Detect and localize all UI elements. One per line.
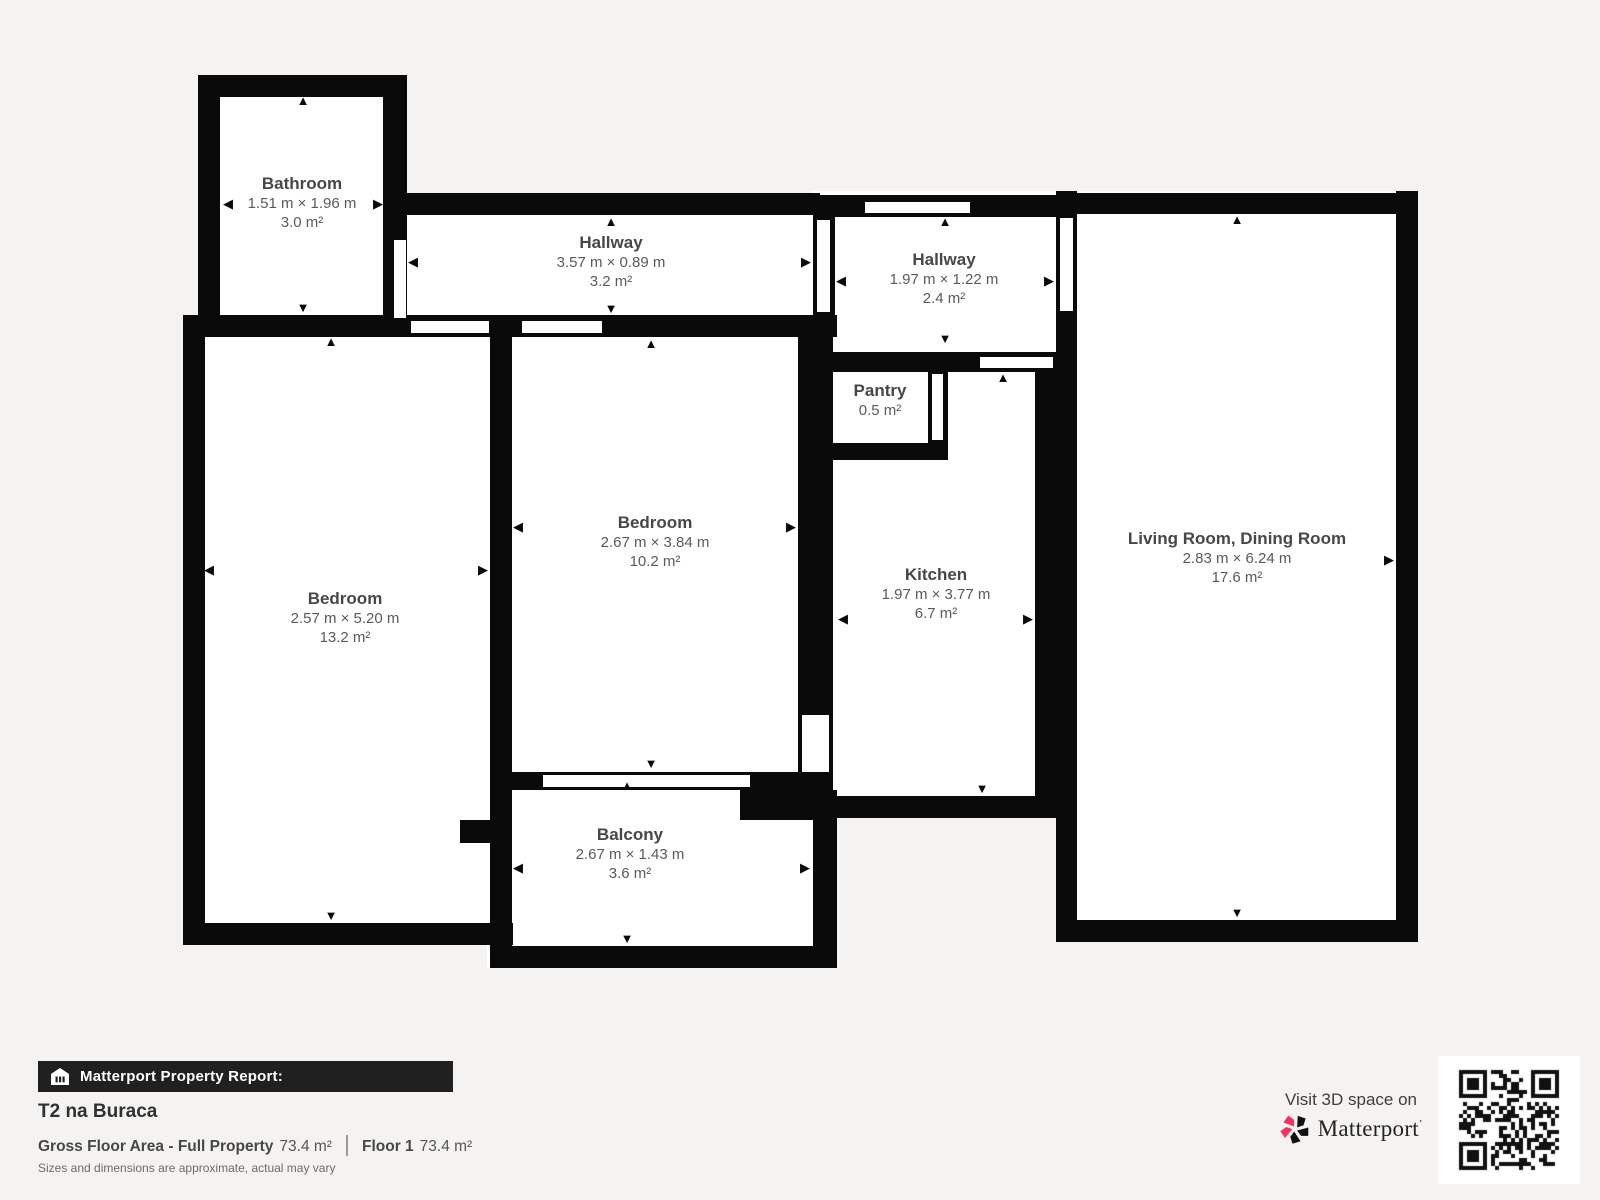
dimension-arrow-left: ◀ xyxy=(220,196,236,212)
room-dimensions: 2.57 m × 5.20 m xyxy=(291,609,400,628)
room-name: Balcony xyxy=(576,824,685,845)
room-name: Kitchen xyxy=(882,564,991,585)
room-area: 3.2 m² xyxy=(557,272,666,291)
room-name: Hallway xyxy=(557,232,666,253)
gfa-label: Gross Floor Area - Full Property xyxy=(38,1138,273,1155)
disclaimer-text: Sizes and dimensions are approximate, ac… xyxy=(38,1161,335,1175)
door-opening xyxy=(865,202,970,213)
dimension-arrow-right: ▶ xyxy=(797,860,813,876)
dimension-arrow-up: ▲ xyxy=(995,370,1011,386)
qr-canvas xyxy=(1458,1069,1560,1171)
wall xyxy=(1056,193,1418,214)
report-bar: Matterport Property Report: xyxy=(38,1061,453,1092)
room-area: 3.0 m² xyxy=(248,213,357,232)
room-name: Bathroom xyxy=(248,173,357,194)
wall xyxy=(818,443,948,460)
room-label-pantry: Pantry0.5 m² xyxy=(854,380,907,420)
dimension-arrow-down: ▼ xyxy=(619,931,635,947)
qr-code[interactable] xyxy=(1438,1056,1580,1184)
area-summary: Gross Floor Area - Full Property73.4 m²F… xyxy=(38,1135,472,1156)
room-dimensions: 2.83 m × 6.24 m xyxy=(1128,549,1346,568)
wall xyxy=(183,923,513,945)
door-opening xyxy=(1060,218,1073,311)
room-label-bedroom-left: Bedroom2.57 m × 5.20 m13.2 m² xyxy=(291,588,400,647)
dimension-arrow-left: ◀ xyxy=(405,254,421,270)
dimension-arrow-left: ◀ xyxy=(510,519,526,535)
dimension-arrow-right: ▶ xyxy=(783,519,799,535)
matterport-pinwheel-icon xyxy=(1280,1114,1310,1144)
door-opening xyxy=(543,775,750,787)
room-name: Bedroom xyxy=(601,512,710,533)
door-opening xyxy=(522,321,602,333)
dimension-arrow-left: ◀ xyxy=(835,611,851,627)
room-label-hallway-entry: Hallway1.97 m × 1.22 m2.4 m² xyxy=(890,249,999,308)
matterport-logo[interactable]: Matterport’ xyxy=(1248,1113,1454,1145)
room-dimensions: 2.67 m × 1.43 m xyxy=(576,845,685,864)
dimension-arrow-down: ▼ xyxy=(643,756,659,772)
door-opening xyxy=(802,715,829,772)
dimension-arrow-up: ▲ xyxy=(619,778,635,794)
room-dimensions: 2.67 m × 3.84 m xyxy=(601,533,710,552)
dimension-arrow-right: ▶ xyxy=(475,562,491,578)
door-opening xyxy=(932,374,943,440)
room-dimensions: 1.97 m × 1.22 m xyxy=(890,270,999,289)
wall xyxy=(1396,191,1418,942)
wall xyxy=(198,75,220,320)
dimension-arrow-right: ▶ xyxy=(798,254,814,270)
trademark-mark: ’ xyxy=(1419,1119,1422,1130)
wall xyxy=(490,315,512,968)
room-area: 6.7 m² xyxy=(882,604,991,623)
dimension-arrow-right: ▶ xyxy=(370,196,386,212)
dimension-arrow-left: ◀ xyxy=(201,562,217,578)
room-area: 0.5 m² xyxy=(854,401,907,420)
dimension-arrow-down: ▼ xyxy=(1229,905,1245,921)
room-name: Hallway xyxy=(890,249,999,270)
room-area: 10.2 m² xyxy=(601,552,710,571)
room-label-living-dining: Living Room, Dining Room2.83 m × 6.24 m1… xyxy=(1128,528,1346,587)
door-opening xyxy=(817,220,830,312)
wall xyxy=(460,820,512,843)
dimension-arrow-up: ▲ xyxy=(603,214,619,230)
door-opening xyxy=(411,321,489,333)
wall xyxy=(1035,372,1056,818)
room-label-bedroom-middle: Bedroom2.67 m × 3.84 m10.2 m² xyxy=(601,512,710,571)
dimension-arrow-right: ▶ xyxy=(1041,273,1057,289)
dimension-arrow-up: ▲ xyxy=(937,214,953,230)
dimension-arrow-up: ▲ xyxy=(323,334,339,350)
wall xyxy=(490,946,837,968)
room-dimensions: 3.57 m × 0.89 m xyxy=(557,253,666,272)
room-area: 17.6 m² xyxy=(1128,568,1346,587)
dimension-arrow-up: ▲ xyxy=(295,93,311,109)
dimension-arrow-left: ◀ xyxy=(1056,552,1072,568)
wall xyxy=(385,193,820,215)
wall xyxy=(740,790,837,820)
dimension-arrow-down: ▼ xyxy=(295,300,311,316)
dimension-arrow-down: ▼ xyxy=(323,908,339,924)
dimension-arrow-up: ▲ xyxy=(1229,212,1245,228)
room-dimensions: 1.51 m × 1.96 m xyxy=(248,194,357,213)
home-icon xyxy=(51,1068,69,1085)
dimension-arrow-right: ▶ xyxy=(1020,611,1036,627)
room-label-hallway-top: Hallway3.57 m × 0.89 m3.2 m² xyxy=(557,232,666,291)
room-label-kitchen: Kitchen1.97 m × 3.77 m6.7 m² xyxy=(882,564,991,623)
wall xyxy=(183,315,205,945)
dimension-arrow-down: ▼ xyxy=(937,331,953,347)
wall xyxy=(1056,920,1418,942)
room-name: Bedroom xyxy=(291,588,400,609)
door-opening xyxy=(394,240,406,318)
room-label-bathroom: Bathroom1.51 m × 1.96 m3.0 m² xyxy=(248,173,357,232)
matterport-wordmark: Matterport xyxy=(1318,1116,1419,1141)
gfa-value: 73.4 m² xyxy=(279,1138,332,1155)
room-area: 3.6 m² xyxy=(576,864,685,883)
dimension-arrow-left: ◀ xyxy=(510,860,526,876)
room-label-balcony: Balcony2.67 m × 1.43 m3.6 m² xyxy=(576,824,685,883)
dimension-arrow-right: ▶ xyxy=(1381,552,1397,568)
floor-value: 73.4 m² xyxy=(420,1138,473,1155)
dimension-arrow-up: ▲ xyxy=(643,336,659,352)
floor-label: Floor 1 xyxy=(362,1138,414,1155)
divider xyxy=(346,1135,348,1156)
floor-plan: ▲◀▶▼▲◀▶▼▲◀▶▼▲◀▶▼▲◀▶▼▲◀▶▼▲◀▶▼▲◀▶▼Bathroom… xyxy=(0,0,1600,1200)
property-title: T2 na Buraca xyxy=(38,1101,157,1123)
room-dimensions: 1.97 m × 3.77 m xyxy=(882,585,991,604)
door-opening xyxy=(980,357,1053,368)
wall xyxy=(815,796,1056,818)
room-area: 2.4 m² xyxy=(890,289,999,308)
report-bar-label: Matterport Property Report: xyxy=(80,1068,283,1085)
dimension-arrow-left: ◀ xyxy=(833,273,849,289)
room-name: Pantry xyxy=(854,380,907,401)
room-area: 13.2 m² xyxy=(291,628,400,647)
visit-3d-text: Visit 3D space on xyxy=(1258,1090,1444,1110)
dimension-arrow-down: ▼ xyxy=(974,781,990,797)
dimension-arrow-down: ▼ xyxy=(603,301,619,317)
room-name: Living Room, Dining Room xyxy=(1128,528,1346,549)
